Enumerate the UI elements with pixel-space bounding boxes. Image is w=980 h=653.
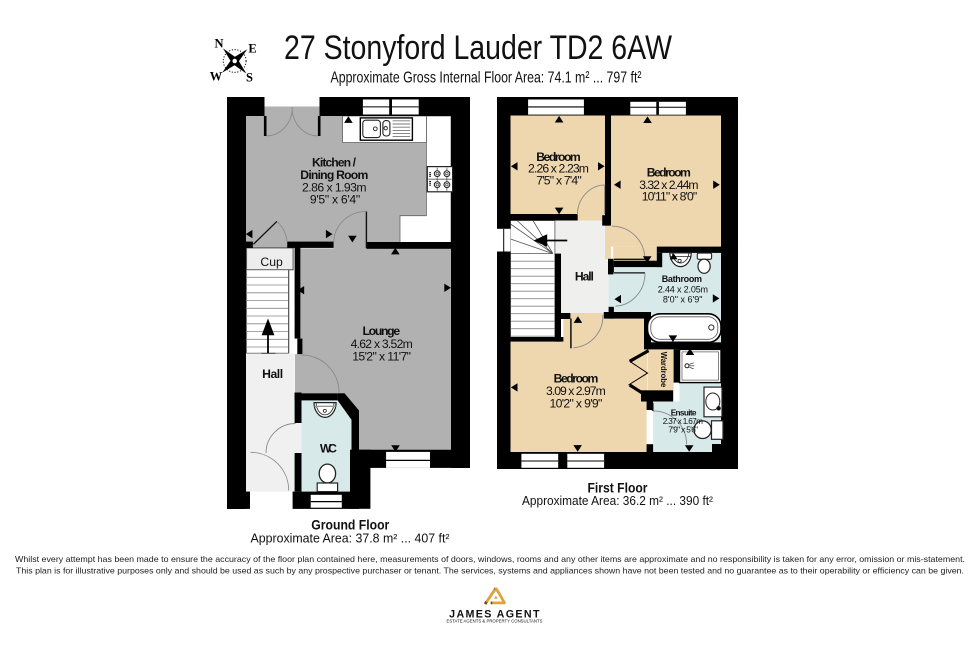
svg-text:10'11" x 8'0": 10'11" x 8'0" <box>642 189 698 203</box>
svg-text:Ensuite: Ensuite <box>671 408 697 417</box>
svg-text:N: N <box>214 37 223 51</box>
svg-text:W: W <box>210 70 223 84</box>
svg-text:Hall: Hall <box>575 270 594 284</box>
svg-text:ESTATE AGENTS & PROPERTY CONSU: ESTATE AGENTS & PROPERTY CONSULTANTS <box>447 619 543 624</box>
svg-text:Whilst every attempt has been: Whilst every attempt has been made to en… <box>15 555 965 564</box>
svg-text:7'5" x 7'4": 7'5" x 7'4" <box>536 174 582 188</box>
svg-text:9'5" x 6'4": 9'5" x 6'4" <box>310 193 360 207</box>
svg-text:7'9" x 5'6": 7'9" x 5'6" <box>668 425 698 434</box>
svg-text:Hall: Hall <box>262 367 283 381</box>
svg-text:E: E <box>248 42 256 56</box>
svg-text:Bathroom: Bathroom <box>662 274 702 284</box>
svg-text:Lounge: Lounge <box>363 324 401 338</box>
svg-text:WC: WC <box>320 441 337 455</box>
svg-text:Cup: Cup <box>260 255 283 269</box>
svg-text:Approximate Gross Internal Flo: Approximate Gross Internal Floor Area: 7… <box>331 70 643 87</box>
svg-text:10'2" x 9'9": 10'2" x 9'9" <box>549 396 602 410</box>
svg-text:This plan is for illustrative: This plan is for illustrative purposes o… <box>16 567 964 576</box>
svg-text:8'0" x 6'9": 8'0" x 6'9" <box>663 295 703 305</box>
svg-text:Wardrobe: Wardrobe <box>659 352 669 388</box>
svg-text:27 Stonyford Lauder TD2 6AW: 27 Stonyford Lauder TD2 6AW <box>284 29 672 67</box>
svg-text:Approximate Area: 36.2 m² ...: Approximate Area: 36.2 m² ... 390 ft² <box>522 493 714 508</box>
svg-text:Approximate Area: 37.8 m² ...: Approximate Area: 37.8 m² ... 407 ft² <box>251 531 451 546</box>
svg-text:15'2" x 11'7": 15'2" x 11'7" <box>352 349 411 363</box>
svg-text:S: S <box>246 71 253 85</box>
svg-text:2.44 x 2.05m: 2.44 x 2.05m <box>658 285 708 295</box>
